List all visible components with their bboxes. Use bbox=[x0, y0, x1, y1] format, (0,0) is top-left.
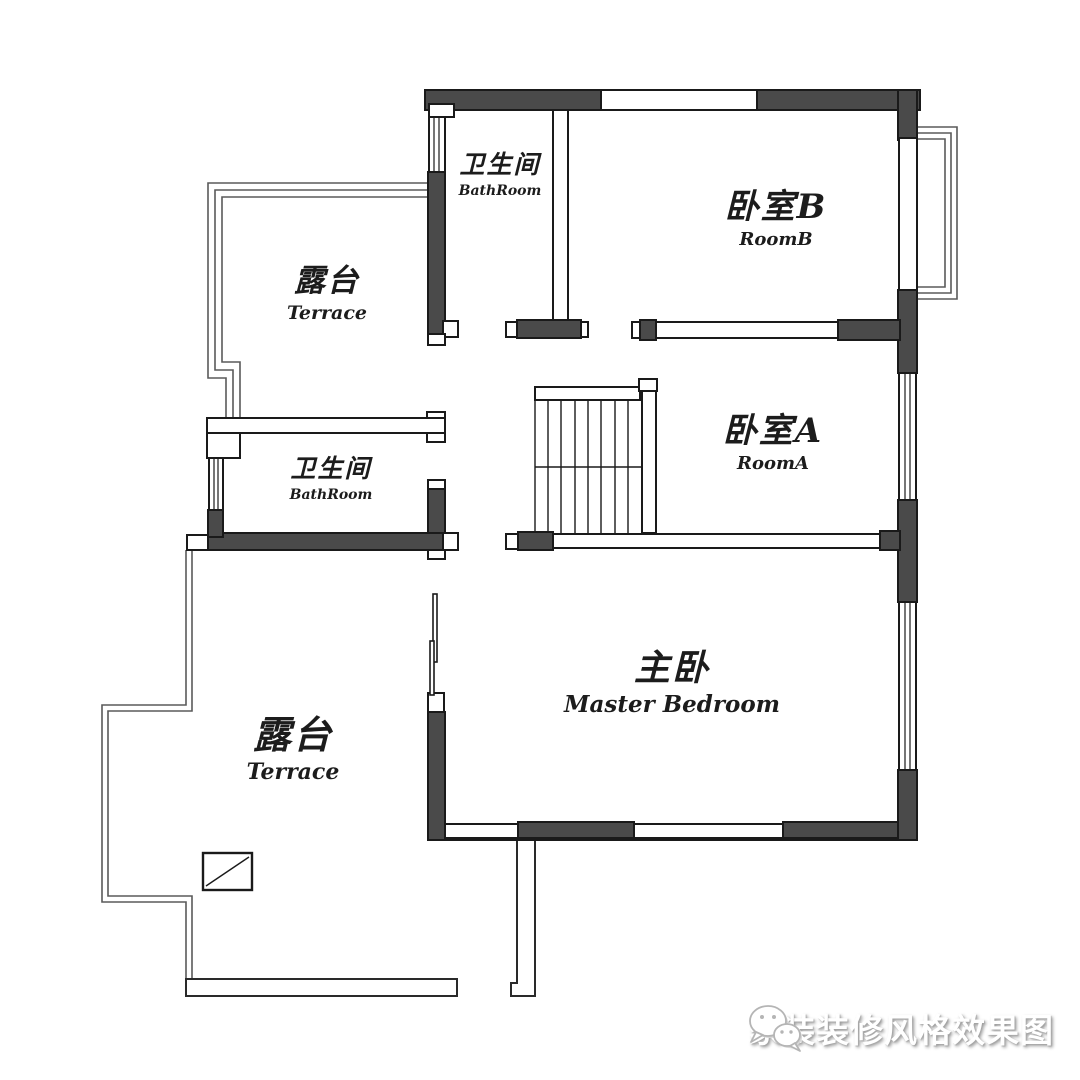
room-name-zh: 露台 bbox=[287, 266, 367, 297]
floorplan-page: 卫生间 BathRoom 卧室B RoomB 露台 Terrace 卧室A Ro… bbox=[0, 0, 1080, 1080]
terrace-planter bbox=[203, 853, 252, 890]
staircase-treads bbox=[535, 400, 642, 533]
room-name-en: Master Bedroom bbox=[564, 693, 780, 716]
sliding-door bbox=[430, 594, 437, 695]
interior-walls bbox=[506, 110, 900, 550]
bay-window bbox=[917, 127, 957, 299]
label-bedroom-a: 卧室A RoomA bbox=[723, 414, 823, 473]
room-name-zh: 卧室B bbox=[725, 190, 828, 224]
wechat-icon bbox=[748, 1004, 802, 1056]
room-name-en: RoomA bbox=[723, 455, 823, 473]
room-name-en: Terrace bbox=[287, 304, 367, 323]
terrace-lower-parapet bbox=[102, 550, 192, 980]
room-name-zh: 卫生间 bbox=[290, 456, 373, 481]
label-bathroom-left: 卫生间 BathRoom bbox=[290, 456, 373, 502]
label-bedroom-b: 卧室B RoomB bbox=[725, 190, 828, 249]
label-terrace-lower: 露台 Terrace bbox=[247, 716, 340, 783]
label-master-bedroom: 主卧 Master Bedroom bbox=[564, 650, 780, 716]
room-name-zh: 主卧 bbox=[564, 650, 780, 686]
room-name-en: RoomB bbox=[725, 231, 828, 249]
room-name-en: BathRoom bbox=[459, 184, 542, 198]
room-name-zh: 露台 bbox=[247, 716, 340, 754]
room-name-en: BathRoom bbox=[290, 488, 373, 502]
room-name-zh: 卧室A bbox=[723, 414, 823, 448]
watermark: 家装装修风格效果图 bbox=[748, 1004, 1054, 1052]
wall-caps bbox=[187, 104, 458, 712]
room-name-en: Terrace bbox=[247, 761, 340, 783]
label-terrace-upper: 露台 Terrace bbox=[287, 266, 367, 323]
staircase bbox=[535, 379, 657, 533]
label-bathroom-top: 卫生间 BathRoom bbox=[459, 152, 542, 198]
room-name-zh: 卫生间 bbox=[459, 152, 542, 177]
